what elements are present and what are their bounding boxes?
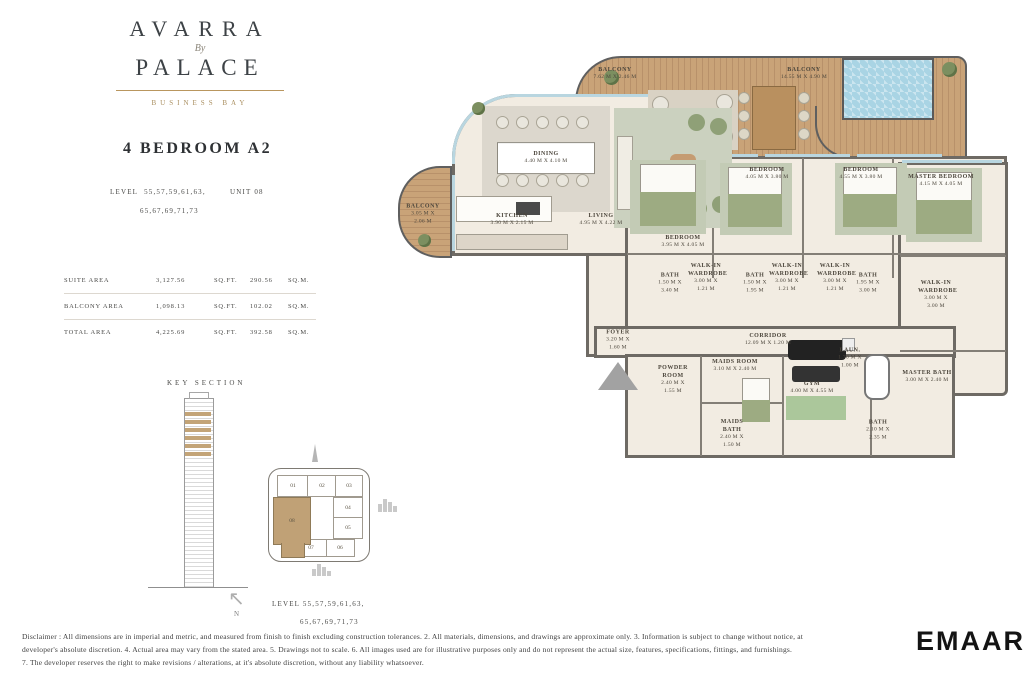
table-row: BALCONY AREA 1,098.13 SQ.FT. 102.02 SQ.M… [64, 293, 316, 319]
city-buildings-icon [378, 498, 397, 512]
level-numbers-2: 65,67,69,71,73 [140, 207, 206, 215]
outdoor-chair-column [738, 92, 750, 140]
outdoor-chair [798, 92, 810, 104]
room-label-gym: GYM4.00 m X 4.55 m [790, 380, 833, 396]
room-label-bath-1: BATH1.50 m X 3.40 m [652, 271, 688, 294]
tower-crown [189, 392, 209, 399]
room-label-foyer: FOYER3.20 m X 1.60 m [600, 328, 636, 351]
key-plan: 01 02 03 04 05 06 07 08 [268, 468, 370, 562]
wall-partition [900, 350, 1006, 352]
kitchen-counter [456, 234, 568, 250]
keyplan-unit-06: 06 [325, 539, 355, 557]
dining-chair [556, 116, 569, 129]
north-arrow-icon: ↖ [228, 586, 245, 610]
unit-cell-label: 04 [345, 505, 351, 511]
dining-chair [576, 174, 589, 187]
room-label-wardrobe-3: WALK-IN WARDROBE3.00 m X 1.21 m [817, 262, 853, 294]
room-label-balcony-top-left: BALCONY7.62 m X 2.46 m [593, 66, 636, 82]
bed-blanket [640, 192, 696, 226]
area-sqm: 290.56 [250, 277, 288, 284]
keyplan-levels: LEVEL 55,57,59,61,63, 65,67,69,71,73 [272, 600, 365, 626]
dining-chair-row [496, 174, 589, 187]
keyplan-unit-08-highlighted: 08 [273, 497, 311, 545]
disclaimer-line-1: Disclaimer : All dimensions are in imper… [22, 631, 902, 644]
area-sqft: 4,225.69 [156, 329, 214, 336]
bed-blanket [916, 200, 972, 234]
level-label: LEVEL [110, 188, 138, 196]
room-label-laundry: LAUN.1.70 m X 1.00 m [832, 346, 868, 369]
dining-chair [536, 174, 549, 187]
keyplan-unit-05: 05 [333, 517, 363, 539]
unit-cell-label: 06 [337, 545, 343, 551]
brand-subtitle: BUSINESS BAY [92, 99, 308, 107]
unit-cell-label: 07 [308, 545, 314, 551]
unit-cell-label: 08 [289, 518, 295, 524]
city-buildings-icon [312, 562, 331, 576]
keyplan-unit-08-extension [281, 543, 305, 558]
area-sqm-unit: SQ.M. [288, 329, 316, 336]
area-sqft: 1,098.13 [156, 303, 214, 310]
outdoor-chair [798, 128, 810, 140]
tower-highlight-floors [185, 412, 211, 460]
keyplan-unit-02: 02 [307, 475, 337, 497]
dining-chair [516, 174, 529, 187]
area-sqm: 392.58 [250, 329, 288, 336]
window-strip [857, 154, 942, 157]
north-label: N [234, 610, 239, 618]
dining-chair-row [496, 116, 589, 129]
gym-mat [786, 396, 846, 420]
plant [418, 234, 431, 247]
room-label-master-bath: MASTER BATH3.00 m X 2.40 m [902, 369, 951, 385]
swimming-pool [842, 58, 934, 120]
disclaimer-text: Disclaimer : All dimensions are in imper… [22, 631, 902, 669]
area-sqm-unit: SQ.M. [288, 277, 316, 284]
brand-logo: AVARRA By PALACE BUSINESS BAY [92, 16, 308, 107]
outdoor-chair-column [798, 92, 810, 140]
dining-chair [516, 116, 529, 129]
keyplan-unit-01: 01 [277, 475, 309, 497]
wall-partition [900, 255, 1006, 257]
unit-levels: LEVEL 55,57,59,61,63, 65,67,69,71,73 [110, 188, 206, 215]
room-label-powder-room: POWDER ROOM2.40 m X 1.55 m [655, 364, 691, 396]
area-sqft-unit: SQ.FT. [214, 303, 250, 310]
room-label-maids-room: MAIDS ROOM3.10 m X 2.40 m [712, 358, 758, 374]
table-row: SUITE AREA 3,127.56 SQ.FT. 290.56 SQ.M. [64, 268, 316, 293]
dining-chair [576, 116, 589, 129]
outdoor-chair [738, 92, 750, 104]
window-strip [765, 154, 850, 157]
room-label-dining: DINING4.40 m X 4.10 m [497, 142, 595, 174]
area-sqft-unit: SQ.FT. [214, 329, 250, 336]
floor-plan: BALCONY7.62 m X 2.46 m BALCONY14.55 m X … [390, 50, 1018, 480]
table-row: TOTAL AREA 4,225.69 SQ.FT. 392.58 SQ.M. [64, 319, 316, 345]
unit-cell-label: 03 [346, 483, 352, 489]
area-sqm: 102.02 [250, 303, 288, 310]
window-strip [452, 175, 455, 251]
wall-partition [782, 356, 784, 456]
keyplan-level-line-2: 65,67,69,71,73 [300, 618, 365, 626]
outdoor-chair [738, 110, 750, 122]
wall-partition [700, 356, 702, 456]
room-label-master-bedroom: MASTER BEDROOM4.15 m X 4.05 m [908, 173, 974, 189]
brand-divider [116, 90, 284, 91]
area-label: BALCONY AREA [64, 303, 156, 310]
outdoor-dining-table [752, 86, 796, 150]
brand-name-avarra: AVARRA [92, 16, 308, 42]
room-label-balcony-top-right: BALCONY14.55 m X 4.90 m [781, 66, 827, 82]
room-label-bedroom-3: BEDROOM4.55 m X 3.80 m [839, 166, 882, 182]
keyplan-unit-03: 03 [335, 475, 363, 497]
level-numbers-1: 55,57,59,61,63, [144, 188, 206, 196]
brand-by: By [92, 43, 308, 54]
level-line-1: LEVEL 55,57,59,61,63, [110, 188, 206, 196]
bed-blanket [728, 194, 782, 227]
plant [472, 102, 485, 115]
area-sqft-unit: SQ.FT. [214, 277, 250, 284]
brand-name-palace: PALACE [92, 55, 308, 81]
room-label-bath-lower: BATH2.10 m X 2.35 m [860, 418, 896, 441]
room-label-wardrobe-1: WALK-IN WARDROBE3.00 m X 1.21 m [688, 262, 724, 294]
unit-cell-label: 02 [319, 483, 325, 489]
unit-number: UNIT 08 [230, 188, 264, 196]
dining-chair [556, 174, 569, 187]
room-label-balcony-left: BALCONY3.05 m X 2.06 m [405, 202, 441, 225]
dining-chair [536, 116, 549, 129]
room-label-wardrobe-2: WALK-IN WARDROBE3.00 m X 1.21 m [769, 262, 805, 294]
area-sqft: 3,127.56 [156, 277, 214, 284]
room-label-bath-2: BATH1.50 m X 1.95 m [737, 271, 773, 294]
wall-partition [802, 158, 804, 278]
window-strip [902, 160, 1002, 163]
room-label-maids-bath: MAIDS BATH2.40 m X 1.50 m [714, 418, 750, 450]
keyplan-level-line-1: LEVEL 55,57,59,61,63, [272, 600, 365, 608]
outdoor-chair [798, 110, 810, 122]
area-label: TOTAL AREA [64, 329, 156, 336]
key-section-title: KEY SECTION [167, 379, 245, 387]
room-label-corridor: CORRIDOR12.09 m X 1.20 m [745, 332, 791, 348]
room-label-bedroom-2: BEDROOM4.05 m X 3.80 m [745, 166, 788, 182]
page-title: 4 BEDROOM A2 [123, 140, 272, 158]
unit-cell-label: 05 [345, 525, 351, 531]
entrance-arrow [598, 362, 638, 390]
burj-khalifa-icon [312, 444, 318, 462]
disclaimer-line-3: 7. The developer reserves the right to m… [22, 657, 902, 670]
room-label-living: LIVING4.95 m X 4.22 m [579, 212, 622, 228]
disclaimer-line-2: developer's absolute discretion. 4. Actu… [22, 644, 902, 657]
outdoor-chair [738, 128, 750, 140]
plant [942, 62, 957, 77]
dining-chair [496, 116, 509, 129]
emaar-logo: EMAAR [916, 626, 1024, 657]
area-label: SUITE AREA [64, 277, 156, 284]
room-label-bedroom-1: BEDROOM3.95 m X 4.05 m [661, 234, 704, 250]
room-label-master-wardrobe: WALK-IN WARDROBE3.00 m X 3.00 m [918, 279, 954, 311]
area-sqm-unit: SQ.M. [288, 303, 316, 310]
keyplan-unit-04: 04 [333, 497, 363, 519]
area-table: SUITE AREA 3,127.56 SQ.FT. 290.56 SQ.M. … [64, 268, 316, 345]
room-label-bath-3: BATH1.95 m X 3.00 m [850, 271, 886, 294]
dining-chair [496, 174, 509, 187]
armchair [688, 114, 705, 131]
bed-blanket [843, 194, 897, 227]
unit-cell-label: 01 [290, 483, 296, 489]
room-label-kitchen: KITCHEN3.90 m X 2.15 m [490, 212, 533, 228]
armchair [710, 118, 727, 135]
